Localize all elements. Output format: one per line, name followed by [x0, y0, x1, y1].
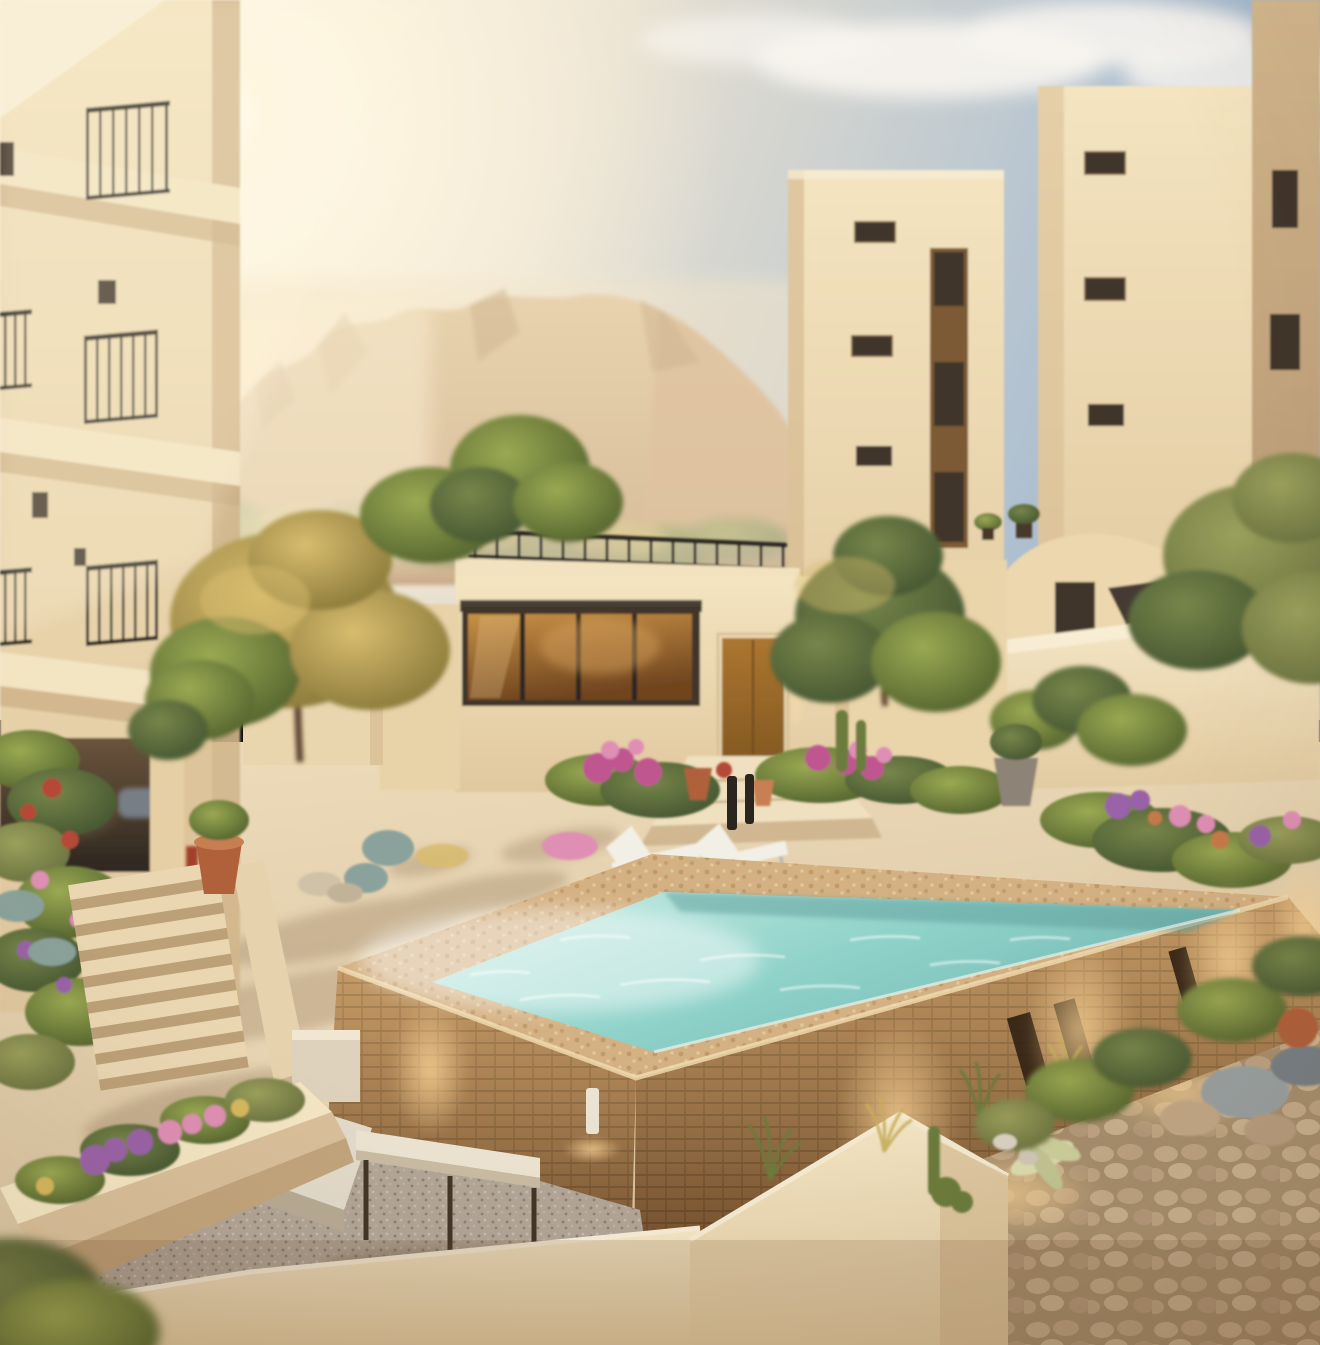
vignette [0, 0, 1320, 1345]
courtyard-render-canvas [0, 0, 1320, 1345]
atmosphere [0, 0, 1320, 1345]
bottom-shade [0, 1240, 1320, 1345]
rendered-photo [0, 0, 1320, 1345]
